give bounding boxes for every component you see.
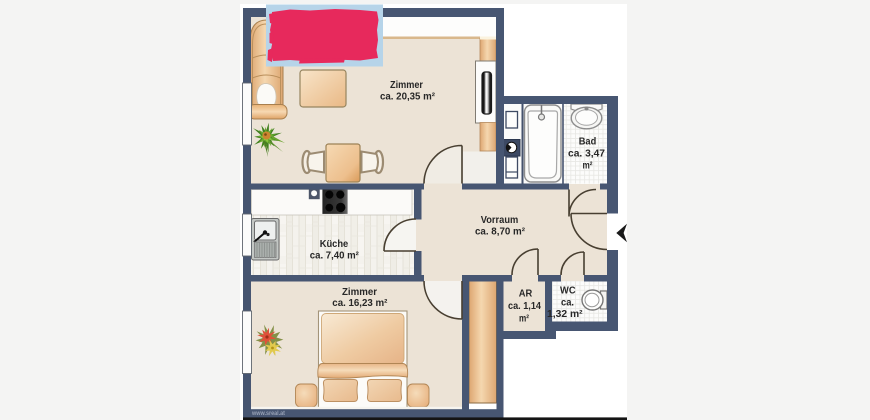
svg-text:Bad: Bad	[579, 137, 597, 148]
svg-text:ca.: ca.	[561, 298, 574, 309]
svg-text:1,32 m²: 1,32 m²	[547, 309, 583, 320]
svg-text:www.sreal.at: www.sreal.at	[251, 410, 285, 417]
svg-text:ca. 20,35 m²: ca. 20,35 m²	[380, 92, 436, 103]
svg-text:Zimmer: Zimmer	[390, 80, 423, 91]
svg-text:m²: m²	[583, 161, 593, 172]
svg-text:AR: AR	[519, 289, 533, 300]
svg-text:Vorraum: Vorraum	[481, 215, 519, 226]
svg-text:Zimmer: Zimmer	[342, 287, 377, 298]
svg-text:ca. 8,70 m²: ca. 8,70 m²	[475, 227, 526, 238]
svg-text:ca. 1,14: ca. 1,14	[508, 301, 541, 312]
svg-text:ca. 16,23 m²: ca. 16,23 m²	[332, 298, 388, 309]
svg-text:ca. 7,40 m²: ca. 7,40 m²	[310, 251, 359, 262]
svg-text:WC: WC	[560, 286, 576, 297]
svg-text:ca. 3,47: ca. 3,47	[568, 149, 605, 160]
svg-text:Küche: Küche	[320, 239, 349, 250]
svg-text:m²: m²	[519, 314, 529, 325]
